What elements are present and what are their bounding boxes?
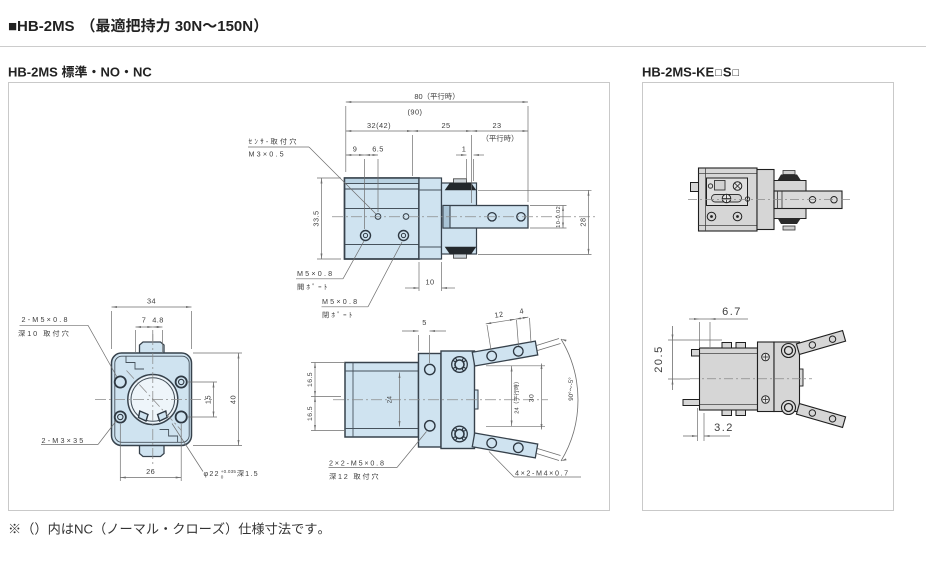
svg-text:20.5: 20.5 [653,345,665,372]
svg-text:φ22: φ22 [204,469,220,478]
svg-text:10: 10 [425,278,434,287]
svg-text:-5°: -5° [568,377,575,386]
svg-text:+0.035: +0.035 [221,469,237,474]
svg-text:□: □ [715,67,722,79]
svg-text:M5×0.8: M5×0.8 [322,297,359,306]
svg-text:25: 25 [441,121,450,130]
svg-text:NC: NC [74,522,94,537]
svg-text:80: 80 [414,92,422,101]
svg-text:32(42): 32(42) [367,121,391,130]
svg-text:33.5: 33.5 [312,210,321,226]
svg-text:28: 28 [579,217,588,226]
svg-text:4×2-M4×0.7: 4×2-M4×0.7 [515,469,570,478]
svg-text:16.5: 16.5 [307,372,314,387]
svg-text:NO: NO [100,65,120,80]
svg-text:2-M3×35: 2-M3×35 [42,436,86,445]
svg-text:23: 23 [492,121,501,130]
svg-text:M5×0.8: M5×0.8 [297,269,334,278]
svg-text:12: 12 [338,472,350,481]
svg-text:6.5: 6.5 [372,145,384,154]
svg-text:26: 26 [146,467,155,476]
svg-text:40: 40 [229,395,238,404]
svg-text:24: 24 [388,396,394,404]
svg-text:S: S [723,65,732,80]
svg-text:4.8: 4.8 [152,316,164,325]
svg-text:HB-2MS: HB-2MS [8,65,58,80]
svg-text:12: 12 [494,310,504,320]
svg-text:10-0.02: 10-0.02 [556,206,562,228]
svg-text:(90): (90) [408,108,423,117]
svg-text:90°: 90° [568,391,575,401]
svg-text:2×2-M5×0.8: 2×2-M5×0.8 [329,459,386,468]
svg-text:30: 30 [529,394,536,402]
svg-text:150N: 150N [217,18,253,35]
svg-text:7: 7 [142,316,147,325]
svg-text:0: 0 [221,475,224,480]
svg-text:5: 5 [422,318,427,327]
svg-text:-: - [266,137,271,146]
svg-text:□: □ [733,67,740,79]
svg-text:2-M5×0.8: 2-M5×0.8 [22,315,70,324]
svg-text:HB-2MS-KE: HB-2MS-KE [642,65,715,80]
svg-text:30N: 30N [175,18,203,35]
svg-text:M3×0.5: M3×0.5 [249,150,286,159]
svg-text:1.5: 1.5 [245,469,259,478]
svg-text:34: 34 [147,297,156,306]
svg-text:24: 24 [515,407,521,414]
svg-text:NC: NC [133,65,152,80]
svg-text:6.7: 6.7 [722,306,742,318]
svg-text:3.2: 3.2 [714,422,734,434]
svg-text:10: 10 [27,329,39,338]
svg-text:9: 9 [353,145,358,154]
svg-text:1: 1 [462,145,467,154]
svg-text:15: 15 [204,395,213,404]
svg-text:4: 4 [519,306,525,316]
svg-text:16.5: 16.5 [307,406,314,421]
svg-text:■HB-2MS: ■HB-2MS [8,18,75,35]
